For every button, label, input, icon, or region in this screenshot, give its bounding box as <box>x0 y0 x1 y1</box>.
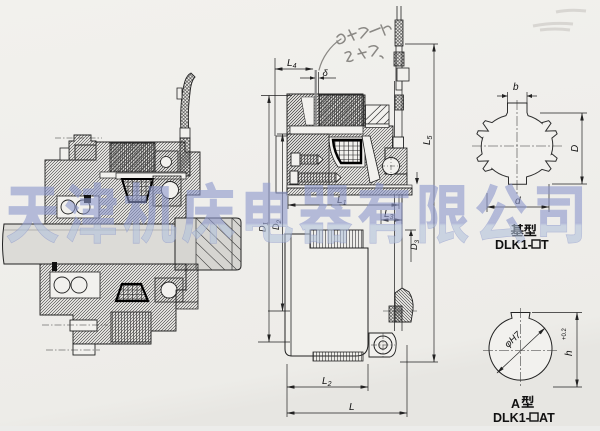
svg-text:DLK1-: DLK1- <box>493 411 530 425</box>
svg-text:δ: δ <box>323 68 329 79</box>
svg-text:A: A <box>511 397 520 411</box>
svg-text:AT: AT <box>539 411 555 425</box>
svg-text:h: h <box>564 350 575 356</box>
svg-text:L: L <box>349 402 355 413</box>
svg-text:DLK1-: DLK1- <box>495 238 532 252</box>
svg-text:b: b <box>513 82 519 93</box>
svg-text:T: T <box>541 238 549 252</box>
svg-text:D: D <box>570 145 581 152</box>
svg-text:+0.2: +0.2 <box>562 327 568 340</box>
